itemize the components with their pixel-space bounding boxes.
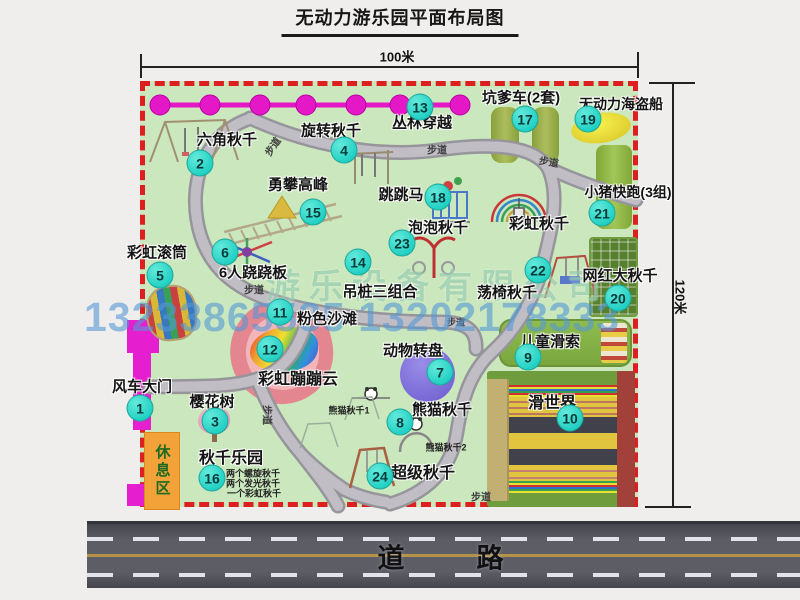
label-rotating-swing: 旋转秋千 — [301, 120, 361, 141]
label-hanging-piles: 吊桩三组合 — [342, 281, 417, 302]
label-rainbow-cloud: 彩虹蹦蹦云 — [258, 365, 338, 389]
label-panda-swing-2: 熊猫秋千2 — [425, 441, 466, 454]
badge-10: 10 — [557, 405, 584, 432]
badge-20: 20 — [605, 285, 632, 312]
park-layout-map: 无动力游乐园平面布局图 100米 120米 休息区 — [0, 0, 800, 600]
label-super-swing: 超级秋千 — [391, 459, 455, 483]
label-animal-turntable: 动物转盘 — [383, 340, 443, 361]
badge-18: 18 — [425, 184, 452, 211]
label-chair-swing: 荡椅秋千 — [477, 282, 537, 303]
label-panda-swing: 熊猫秋千 — [412, 399, 472, 420]
label-hex-swing: 六角秋千 — [197, 129, 257, 150]
badge-2: 2 — [187, 150, 214, 177]
badge-13: 13 — [407, 94, 434, 121]
badge-15: 15 — [300, 199, 327, 226]
badge-14: 14 — [345, 249, 372, 276]
badge-8: 8 — [387, 409, 414, 436]
footpath-label: 步道 — [538, 152, 560, 170]
label-bubble-swing: 泡泡秋千 — [408, 217, 468, 238]
label-jumping-horse: 跳跳马 — [378, 184, 423, 205]
badge-3: 3 — [202, 408, 229, 435]
label-windmill-gate: 风车大门 — [112, 376, 172, 397]
road-label: 道 路 — [378, 537, 510, 576]
badge-6: 6 — [212, 239, 239, 266]
badge-12: 12 — [257, 336, 284, 363]
swing-park-note-3: 一个彩虹秋千 — [227, 487, 281, 500]
badge-4: 4 — [331, 137, 358, 164]
label-rainbow-roller: 彩虹滚筒 — [127, 242, 187, 263]
label-net-swing: 网红大秋千 — [582, 265, 657, 286]
label-pit-cars: 坑爹车(2套) — [482, 87, 560, 108]
peak-icon — [268, 196, 296, 218]
footpath-label: 步道 — [427, 142, 447, 157]
badge-21: 21 — [589, 200, 616, 227]
road: 道 路 — [87, 521, 800, 588]
badge-23: 23 — [389, 230, 416, 257]
badge-22: 22 — [525, 257, 552, 284]
label-rainbow-swing: 彩虹秋千 — [509, 213, 569, 234]
badge-24: 24 — [367, 463, 394, 490]
badge-9: 9 — [515, 344, 542, 371]
footpath-label: 步道 — [471, 489, 491, 504]
footpath-label: 步道 — [261, 405, 276, 425]
badge-17: 17 — [512, 106, 539, 133]
badge-5: 5 — [147, 262, 174, 289]
label-pink-beach: 粉色沙滩 — [297, 308, 357, 329]
badge-7: 7 — [427, 359, 454, 386]
badge-1: 1 — [127, 395, 154, 422]
badge-11: 11 — [267, 299, 294, 326]
label-climbing-peak: 勇攀高峰 — [268, 174, 328, 195]
badge-19: 19 — [575, 106, 602, 133]
badge-16: 16 — [199, 465, 226, 492]
label-panda-swing-1: 熊猫秋千1 — [328, 404, 369, 417]
